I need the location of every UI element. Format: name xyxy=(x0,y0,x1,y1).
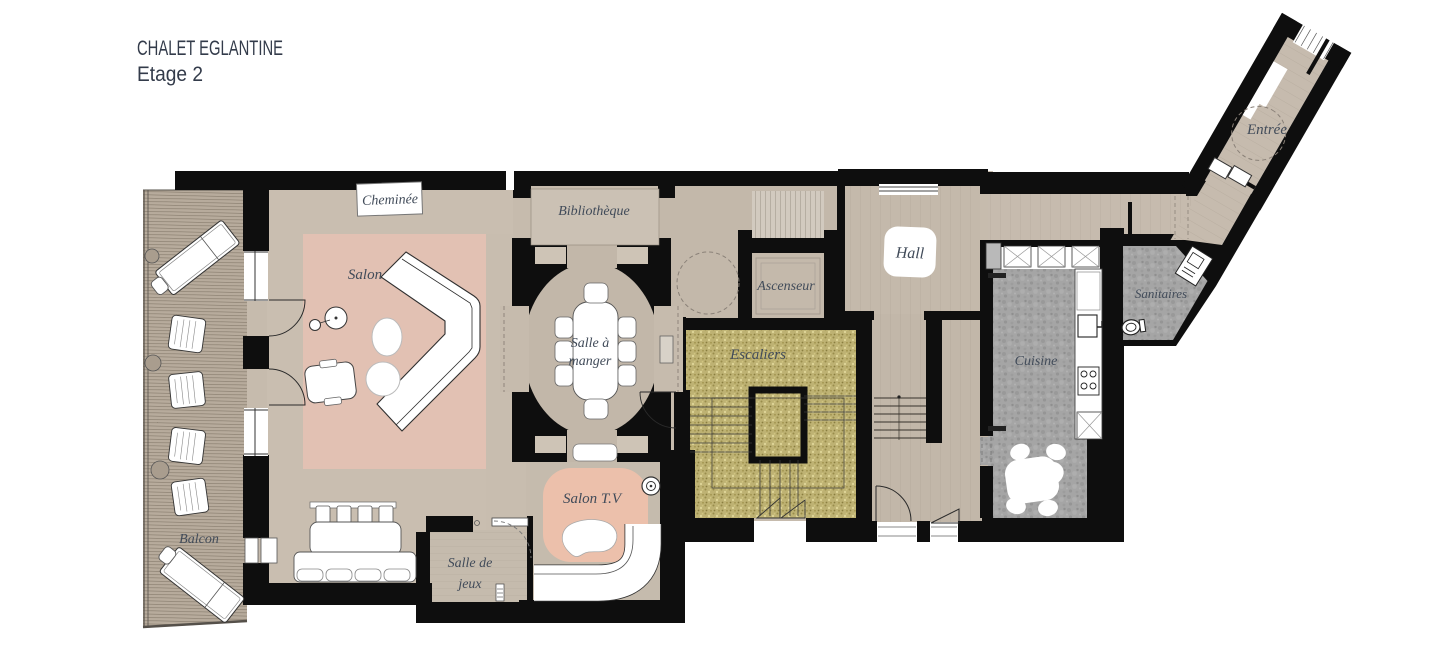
svg-text:Salle de: Salle de xyxy=(448,556,493,571)
svg-text:Hall: Hall xyxy=(894,244,925,262)
svg-text:Cheminée: Cheminée xyxy=(362,192,418,209)
svg-text:CHALET EGLANTINE: CHALET EGLANTINE xyxy=(137,37,283,60)
svg-text:jeux: jeux xyxy=(456,577,482,592)
svg-text:manger: manger xyxy=(569,354,612,369)
svg-text:Entrée: Entrée xyxy=(1246,122,1287,138)
svg-text:Cuisine: Cuisine xyxy=(1015,354,1058,369)
svg-text:Salon: Salon xyxy=(348,267,382,283)
svg-text:Escaliers: Escaliers xyxy=(729,347,786,363)
svg-text:Bibliothèque: Bibliothèque xyxy=(558,204,630,219)
svg-text:Balcon: Balcon xyxy=(179,532,219,547)
svg-text:Sanitaires: Sanitaires xyxy=(1135,286,1187,301)
svg-text:Salon T.V: Salon T.V xyxy=(563,491,623,507)
svg-text:Ascenseur: Ascenseur xyxy=(756,279,815,294)
svg-text:Etage 2: Etage 2 xyxy=(137,63,203,86)
svg-text:Salle à: Salle à xyxy=(571,336,610,351)
